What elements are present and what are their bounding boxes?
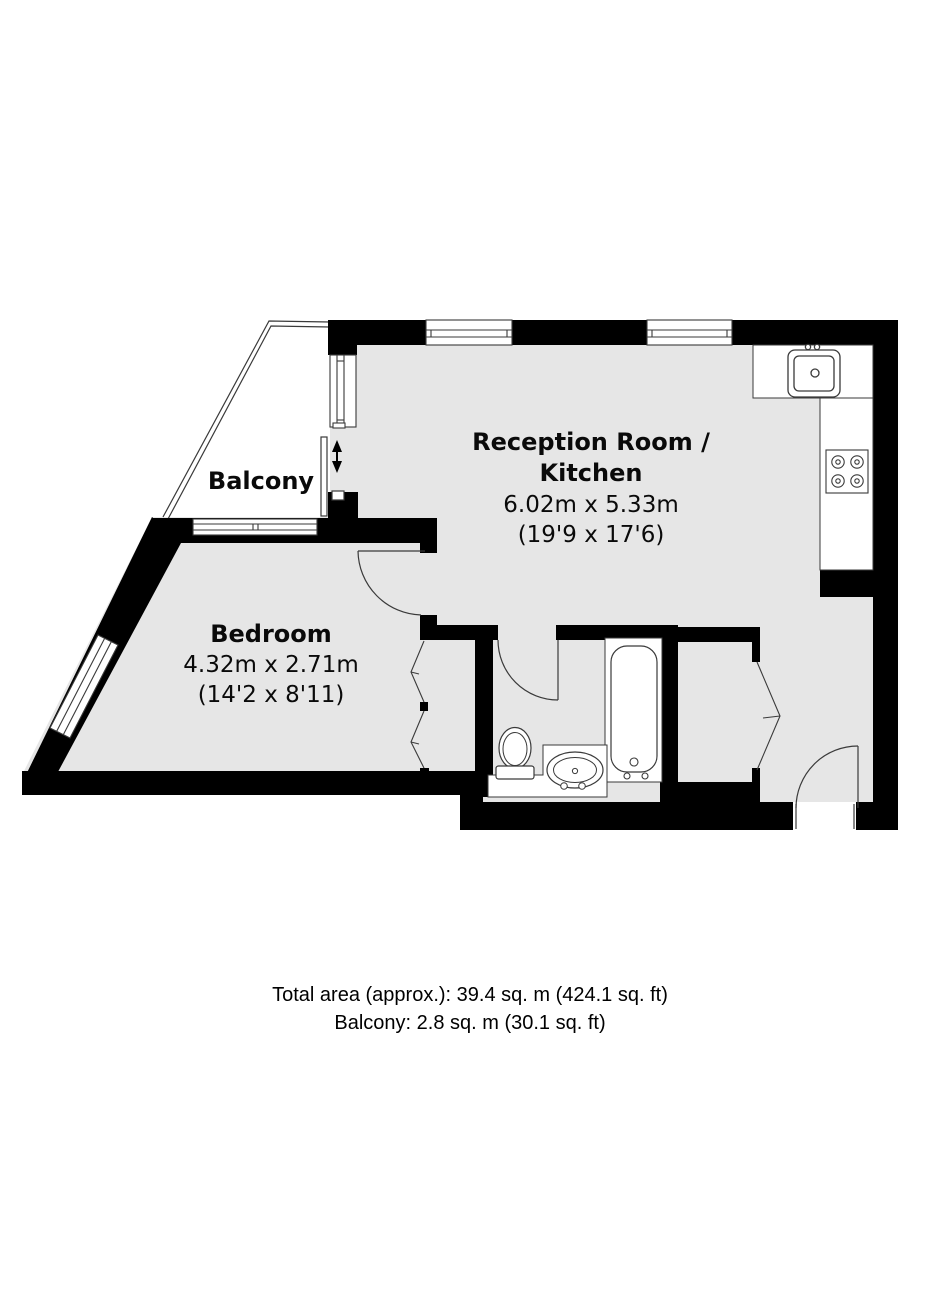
wall-closet-bottom: [662, 782, 760, 802]
wall-bottom-east: [460, 802, 793, 830]
bathtub: [605, 638, 662, 782]
kitchen-sink: [788, 344, 840, 397]
area-summary: Total area (approx.): 39.4 sq. m (424.1 …: [272, 984, 668, 1034]
total-area-text: Total area (approx.): 39.4 sq. m (424.1 …: [272, 984, 668, 1006]
reception-dims-metric: 6.02m x 5.33m: [503, 492, 678, 518]
balcony-area-text: Balcony: 2.8 sq. m (30.1 sq. ft): [334, 1012, 605, 1034]
wall-closet-stub-top: [752, 642, 760, 662]
wall-top: [328, 320, 898, 345]
reception-label-line1: Reception Room /: [472, 428, 710, 456]
reception-dims-imperial: (19'9 x 17'6): [518, 522, 665, 548]
wall-bathroom-right: [660, 625, 678, 805]
wall-bedroom-door-stub-bottom: [420, 615, 437, 640]
bedroom-label: Bedroom: [210, 620, 332, 648]
balcony-label: Balcony: [208, 467, 315, 495]
wall-closet-top: [662, 627, 760, 642]
window-top-2: [647, 320, 732, 345]
wall-wardrobe-stub-bottom: [420, 768, 429, 777]
wall-wardrobe-stub-mid: [420, 702, 428, 711]
floor-plan: Balcony Reception Room / Kitchen 6.02m x…: [0, 0, 940, 1301]
window-top-1: [426, 320, 512, 345]
bedroom-dims-metric: 4.32m x 2.71m: [183, 652, 358, 678]
wall-balcony-left-block: [328, 320, 357, 355]
wall-bottom-entry-right: [856, 802, 898, 830]
hob: [826, 450, 868, 493]
window-reception-balcony: [330, 355, 356, 428]
window-bedroom-balcony: [193, 519, 317, 535]
wall-right: [873, 320, 898, 830]
wall-bottom-bedroom: [22, 771, 483, 795]
wall-closet-stub-bottom: [752, 768, 760, 784]
bedroom-dims-imperial: (14'2 x 8'11): [198, 682, 345, 708]
reception-label-line2: Kitchen: [540, 459, 643, 487]
wall-counter-end-block: [820, 570, 873, 597]
floor-plan-page: Balcony Reception Room / Kitchen 6.02m x…: [0, 0, 940, 1301]
